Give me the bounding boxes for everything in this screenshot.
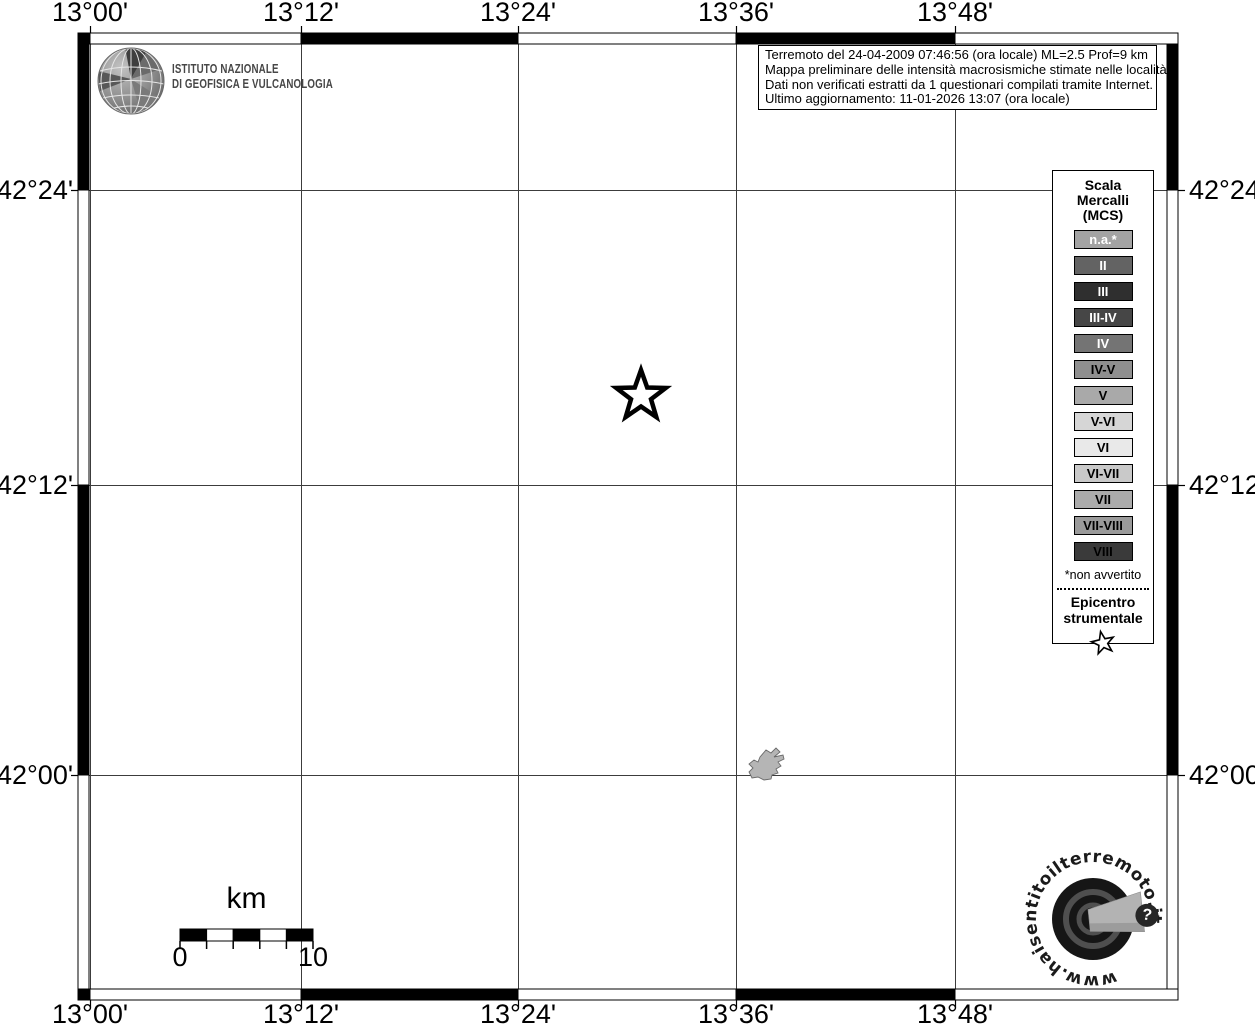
legend-swatch: V-VI (1074, 412, 1133, 431)
scalebar-segment (286, 929, 313, 941)
legend-swatch: III-IV (1074, 308, 1133, 327)
ingv-line2: DI GEOFISICA E VULCANOLOGIA (172, 77, 333, 92)
legend-swatch: II (1074, 256, 1133, 275)
legend-separator (1057, 588, 1149, 590)
lon-label-bottom: 13°24' (480, 999, 556, 1024)
legend-epicenter-star-icon (1053, 628, 1153, 663)
lon-label-top: 13°00' (52, 0, 128, 27)
legend-epicenter-label: Epicentro strumentale (1053, 594, 1153, 626)
lon-label-top: 13°24' (480, 0, 556, 27)
lon-label-bottom: 13°12' (263, 999, 339, 1024)
legend-swatch: VII-VIII (1074, 516, 1133, 535)
frame-band-segment (1167, 775, 1178, 989)
legend-swatch: IV-V (1074, 360, 1133, 379)
lon-label-top: 13°48' (917, 0, 993, 27)
ingv-line1: ISTITUTO NAZIONALE (172, 62, 333, 77)
lat-label-left: 42°12' (0, 470, 73, 500)
frame-band-segment (78, 33, 90, 44)
info-line: Mappa preliminare delle intensità macros… (765, 63, 1154, 78)
frame-band-segment (78, 190, 89, 485)
frame-band-segment (955, 33, 1178, 44)
info-line: Ultimo aggiornamento: 11-01-2026 13:07 (… (765, 92, 1154, 107)
frame-band-segment (1167, 44, 1178, 190)
scalebar-end-label: 10 (298, 942, 328, 973)
scalebar-segment (233, 929, 260, 941)
frame-band-segment (1167, 190, 1178, 485)
lon-label-top: 13°36' (698, 0, 774, 27)
scalebar-unit-label: km (180, 882, 313, 916)
frame-band-segment (78, 775, 89, 989)
lon-label-bottom: 13°36' (698, 999, 774, 1024)
legend-swatch: VII (1074, 490, 1133, 509)
legend-swatch: V (1074, 386, 1133, 405)
legend-swatch: VIII (1074, 542, 1133, 561)
frame-band-segment (736, 33, 955, 44)
lon-label-bottom: 13°00' (52, 999, 128, 1024)
frame-band-segment (301, 33, 518, 44)
legend-items: n.a.*IIIIIIII-IVIVIV-VVV-VIVIVI-VIIVIIVI… (1053, 230, 1153, 561)
info-line: Terremoto del 24-04-2009 07:46:56 (ora l… (765, 48, 1154, 63)
macroseismic-map-page: www.haisentitoilterremoto.it ? 13°00'13°… (0, 0, 1255, 1024)
legend-title: Scala Mercalli (MCS) (1053, 178, 1153, 223)
legend-swatch: n.a.* (1074, 230, 1133, 249)
lat-label-left: 42°24' (0, 175, 73, 205)
frame-band-segment (90, 33, 301, 44)
scalebar-segment (180, 929, 207, 941)
legend-footnote: *non avvertito (1053, 568, 1153, 582)
scale-bar (180, 929, 313, 949)
epicenter-star-marker (616, 370, 665, 417)
lat-label-left: 42°00' (0, 760, 73, 790)
map-frame (71, 26, 1185, 1007)
lat-label-right: 42°12' (1189, 470, 1255, 500)
lat-label-right: 42°00' (1189, 760, 1255, 790)
earthquake-info-box: Terremoto del 24-04-2009 07:46:56 (ora l… (758, 45, 1157, 110)
legend-swatch: VI-VII (1074, 464, 1133, 483)
frame-band-segment (78, 485, 89, 775)
legend-swatch: III (1074, 282, 1133, 301)
lon-label-bottom: 13°48' (917, 999, 993, 1024)
scalebar-start-label: 0 (172, 942, 187, 973)
info-line: Dati non verificati estratti da 1 questi… (765, 78, 1154, 93)
ingv-institute-name: ISTITUTO NAZIONALE DI GEOFISICA E VULCAN… (172, 62, 333, 92)
haisentito-logo: www.haisentitoilterremoto.it ? (1021, 847, 1165, 991)
lat-label-right: 42°24' (1189, 175, 1255, 205)
frame-band-segment (518, 33, 736, 44)
legend-swatch: VI (1074, 438, 1133, 457)
scalebar-segment (260, 929, 287, 941)
legend-swatch: IV (1074, 334, 1133, 353)
lon-label-top: 13°12' (263, 0, 339, 27)
frame-band-segment (78, 44, 89, 190)
frame-band-segment (1167, 485, 1178, 775)
scalebar-segment (207, 929, 234, 941)
ingv-globe-icon (98, 47, 164, 114)
mercalli-legend: Scala Mercalli (MCS) n.a.*IIIIIIII-IVIVI… (1052, 170, 1154, 644)
grid-lines (89, 44, 1167, 989)
